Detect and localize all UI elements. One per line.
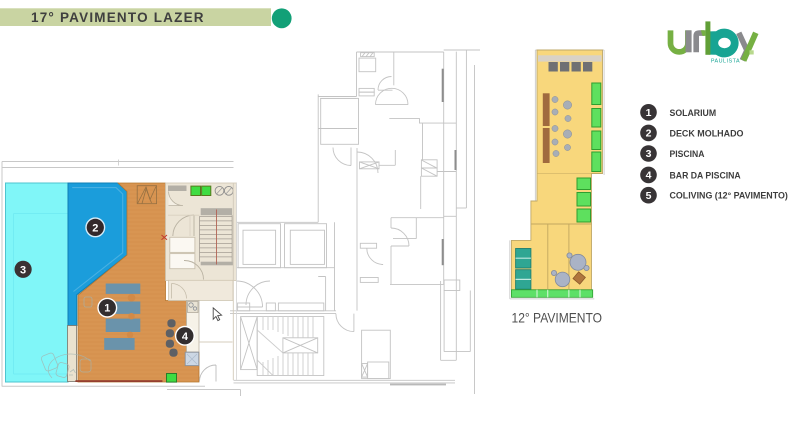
svg-text:COLIVING (12° PAVIMENTO): COLIVING (12° PAVIMENTO): [670, 191, 788, 202]
svg-text:1: 1: [646, 107, 652, 119]
svg-text:SOLARIUM: SOLARIUM: [670, 108, 717, 119]
svg-text:PAULISTA: PAULISTA: [711, 59, 740, 65]
svg-text:4: 4: [182, 331, 189, 343]
svg-text:12° PAVIMENTO: 12° PAVIMENTO: [512, 311, 603, 326]
svg-text:DECK MOLHADO: DECK MOLHADO: [670, 128, 744, 139]
svg-text:1: 1: [104, 303, 110, 315]
svg-text:PISCINA: PISCINA: [670, 149, 705, 160]
svg-text:17° PAVIMENTO LAZER: 17° PAVIMENTO LAZER: [31, 10, 205, 25]
svg-text:3: 3: [20, 264, 26, 276]
svg-text:3: 3: [646, 148, 652, 160]
svg-text:2: 2: [646, 128, 652, 140]
svg-text:4: 4: [646, 170, 652, 182]
svg-text:2: 2: [92, 222, 98, 234]
svg-text:BAR DA PISCINA: BAR DA PISCINA: [670, 170, 741, 181]
svg-text:5: 5: [646, 190, 652, 202]
